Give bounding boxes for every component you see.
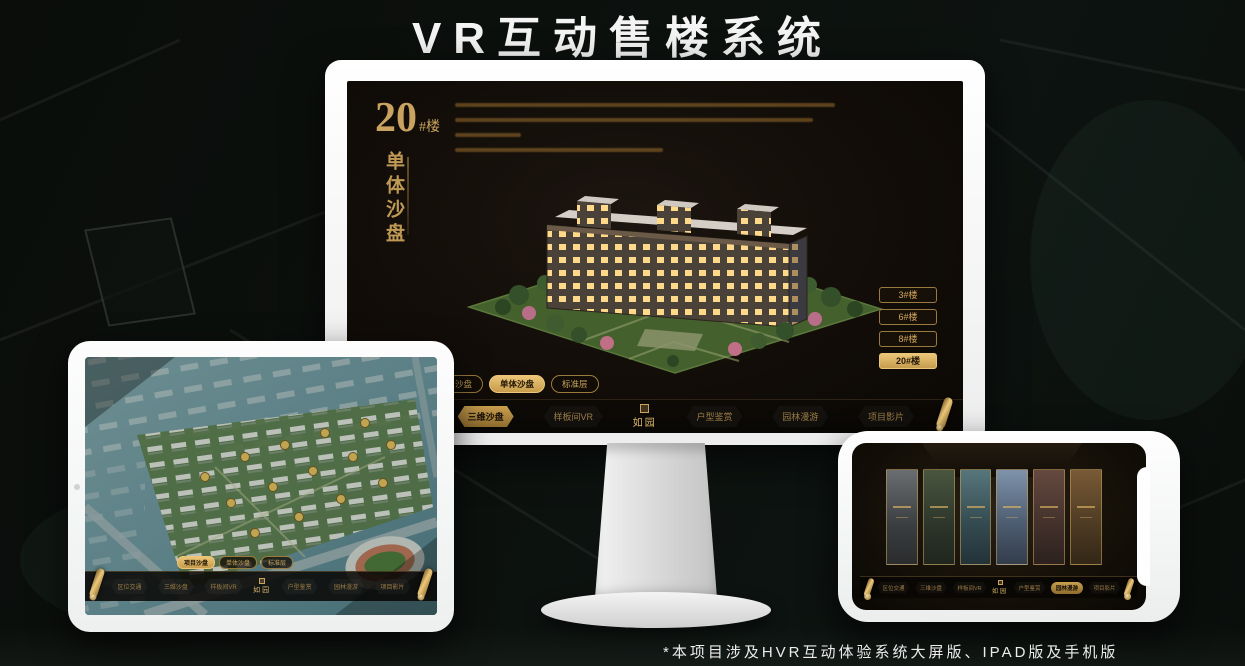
building-number: 20#楼 bbox=[375, 97, 440, 139]
nav-item-showroom-vr[interactable]: 样板间VR bbox=[204, 579, 242, 594]
floor-button-8[interactable]: 8#楼 bbox=[879, 331, 937, 347]
nav-item-unit-plans[interactable]: 户型鉴赏 bbox=[282, 579, 318, 594]
nav-item-garden-roam[interactable]: 园林漫游 bbox=[772, 406, 828, 427]
nav-item-3d-sandtable[interactable]: 三维沙盘 bbox=[158, 579, 194, 594]
nav-item-project-film[interactable]: 项目影片 bbox=[858, 406, 914, 427]
poster-canvas: VR互动售楼系统 20#楼 单体沙盘 bbox=[0, 0, 1245, 666]
nav-item-project-film[interactable]: 项目影片 bbox=[1089, 582, 1121, 594]
brand-logo-text: 如园 bbox=[253, 585, 271, 595]
description-line bbox=[455, 103, 835, 107]
scene-gallery bbox=[886, 469, 1102, 565]
ipad-navbar: 区位交通 三维沙盘 样板间VR 如园 户型鉴赏 园林漫游 项目影片 bbox=[85, 571, 437, 601]
gallery-panel[interactable] bbox=[960, 469, 992, 565]
seal-icon bbox=[640, 404, 649, 413]
phone-mockup: 区位交通 三维沙盘 样板间VR 如园 户型鉴赏 园林漫游 项目影片 bbox=[838, 431, 1180, 622]
floor-button-group: 3#楼 6#楼 8#楼 20#楼 bbox=[879, 287, 937, 369]
phone-notch bbox=[1137, 467, 1150, 586]
nav-item-location[interactable]: 区位交通 bbox=[111, 579, 147, 594]
brand-logo[interactable]: 如园 bbox=[253, 578, 271, 595]
ipad-tab-standard-floor[interactable]: 标准层 bbox=[261, 556, 293, 569]
gallery-panel[interactable] bbox=[886, 469, 918, 565]
monitor-stand-neck bbox=[595, 443, 717, 598]
seal-icon bbox=[998, 580, 1003, 585]
scroll-icon[interactable] bbox=[863, 578, 875, 598]
nav-item-showroom-vr[interactable]: 样板间VR bbox=[952, 582, 986, 594]
floor-button-20[interactable]: 20#楼 bbox=[879, 353, 937, 369]
building-number-value: 20 bbox=[375, 95, 417, 141]
seal-icon bbox=[259, 578, 265, 584]
footnote-text: *本项目涉及HVR互动体验系统大屏版、IPAD版及手机版 bbox=[663, 641, 1118, 662]
phone-navbar: 区位交通 三维沙盘 样板间VR 如园 户型鉴赏 园林漫游 项目影片 bbox=[860, 576, 1138, 598]
nav-item-location[interactable]: 区位交通 bbox=[877, 582, 909, 594]
floor-button-3[interactable]: 3#楼 bbox=[879, 287, 937, 303]
ipad-tab-single-sandtable[interactable]: 单体沙盘 bbox=[219, 556, 257, 569]
building-number-suffix: #楼 bbox=[419, 120, 440, 135]
ipad-mockup: 项目沙盘 单体沙盘 标准层 区位交通 三维沙盘 样板间VR 如园 户型鉴赏 园林… bbox=[68, 341, 454, 632]
gallery-panel[interactable] bbox=[1033, 469, 1065, 565]
nav-item-garden-roam[interactable]: 园林漫游 bbox=[328, 579, 364, 594]
building-3d-render[interactable] bbox=[459, 137, 889, 375]
gallery-panel[interactable] bbox=[1070, 469, 1102, 565]
subtitle-caption-line bbox=[407, 157, 409, 235]
nav-item-showroom-vr[interactable]: 样板间VR bbox=[543, 406, 603, 427]
scroll-icon[interactable] bbox=[416, 567, 433, 598]
background-signboard bbox=[84, 217, 196, 326]
floor-button-6[interactable]: 6#楼 bbox=[879, 309, 937, 325]
nav-item-3d-sandtable[interactable]: 三维沙盘 bbox=[915, 582, 947, 594]
tab-standard-floor[interactable]: 标准层 bbox=[551, 375, 599, 393]
scroll-icon[interactable] bbox=[89, 567, 106, 598]
nav-item-unit-plans[interactable]: 户型鉴赏 bbox=[1014, 582, 1046, 594]
description-line bbox=[455, 118, 813, 122]
monitor-stand-base bbox=[541, 592, 771, 628]
building-subtitle: 单体沙盘 bbox=[380, 151, 407, 247]
brand-logo-text: 如园 bbox=[992, 586, 1008, 595]
scroll-icon[interactable] bbox=[1123, 578, 1135, 598]
nav-item-3d-sandtable[interactable]: 三维沙盘 bbox=[458, 406, 514, 427]
brand-logo[interactable]: 如园 bbox=[633, 404, 657, 429]
ipad-tab-project-sandtable[interactable]: 项目沙盘 bbox=[177, 556, 215, 569]
gallery-panel[interactable] bbox=[923, 469, 955, 565]
phone-screen: 区位交通 三维沙盘 样板间VR 如园 户型鉴赏 园林漫游 项目影片 bbox=[852, 443, 1146, 610]
ipad-view-tab-group: 项目沙盘 单体沙盘 标准层 bbox=[177, 556, 293, 569]
ipad-camera-icon bbox=[74, 484, 80, 490]
nav-item-project-film[interactable]: 项目影片 bbox=[374, 579, 410, 594]
tab-single-sandtable[interactable]: 单体沙盘 bbox=[489, 375, 545, 393]
ipad-screen: 项目沙盘 单体沙盘 标准层 区位交通 三维沙盘 样板间VR 如园 户型鉴赏 园林… bbox=[85, 357, 437, 615]
page-title: VR互动售楼系统 bbox=[0, 2, 1245, 66]
nav-item-garden-roam[interactable]: 园林漫游 bbox=[1051, 582, 1083, 594]
nav-item-unit-plans[interactable]: 户型鉴赏 bbox=[686, 406, 742, 427]
gallery-panel[interactable] bbox=[996, 469, 1028, 565]
brand-logo-text: 如园 bbox=[633, 414, 657, 429]
brand-logo[interactable]: 如园 bbox=[992, 580, 1008, 595]
